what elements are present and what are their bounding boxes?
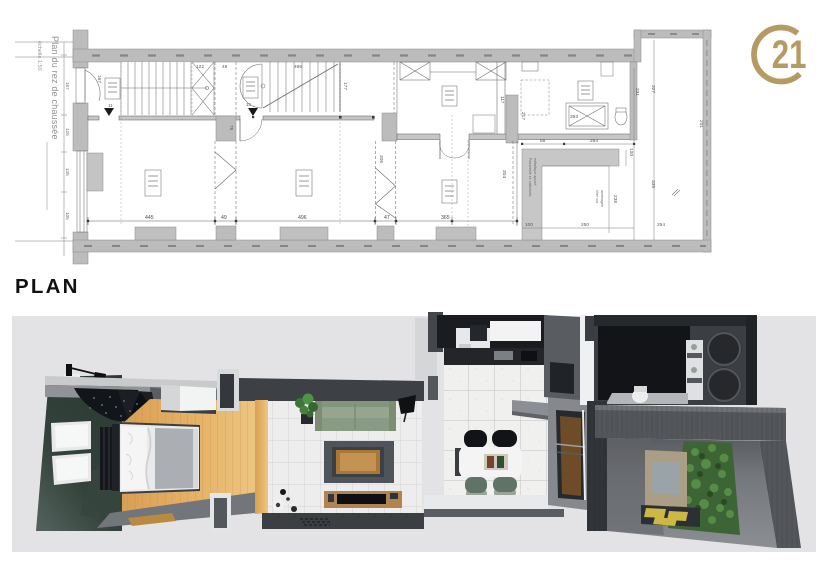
svg-text:métallique ajouré: métallique ajouré: [533, 158, 537, 185]
svg-text:47: 47: [384, 215, 390, 221]
svg-text:306: 306: [378, 155, 384, 163]
svg-text:122: 122: [196, 64, 204, 70]
svg-text:100: 100: [628, 148, 634, 156]
svg-text:Vide sur: Vide sur: [595, 190, 599, 204]
svg-text:21: 21: [772, 32, 807, 77]
svg-text:100: 100: [525, 222, 533, 228]
svg-text:117: 117: [500, 96, 505, 104]
svg-text:250: 250: [581, 222, 589, 228]
svg-text:231: 231: [634, 88, 640, 96]
svg-text:11: 11: [108, 103, 113, 108]
svg-text:365: 365: [441, 215, 450, 221]
svg-text:126: 126: [65, 128, 70, 136]
svg-text:167: 167: [65, 82, 70, 90]
svg-text:264: 264: [590, 138, 598, 144]
svg-text:338: 338: [650, 180, 656, 188]
svg-text:238: 238: [612, 195, 618, 203]
svg-text:177: 177: [342, 82, 348, 90]
svg-text:105: 105: [65, 212, 70, 220]
svg-text:304: 304: [501, 170, 507, 178]
svg-text:201: 201: [698, 120, 704, 128]
svg-text:486: 486: [294, 64, 302, 70]
svg-text:167: 167: [96, 75, 102, 83]
svg-text:PLAN: PLAN: [15, 275, 80, 298]
svg-text:échelle 1:50: échelle 1:50: [36, 41, 42, 71]
svg-text:217: 217: [520, 112, 526, 120]
svg-text:Passerelle en caillebotis: Passerelle en caillebotis: [528, 158, 532, 197]
svg-text:327: 327: [650, 85, 656, 93]
svg-text:496: 496: [298, 215, 307, 221]
svg-text:aménagée: aménagée: [600, 190, 604, 207]
svg-text:Plan du rez de chaussée: Plan du rez de chaussée: [50, 36, 60, 140]
svg-text:445: 445: [145, 215, 154, 221]
svg-text:254: 254: [657, 222, 665, 228]
svg-text:135: 135: [65, 168, 70, 176]
svg-text:88: 88: [540, 138, 546, 144]
svg-text:75: 75: [228, 125, 234, 131]
svg-text:15: 15: [246, 102, 252, 107]
svg-text:393: 393: [570, 114, 578, 120]
svg-text:49: 49: [221, 215, 227, 221]
svg-text:49: 49: [222, 64, 228, 70]
